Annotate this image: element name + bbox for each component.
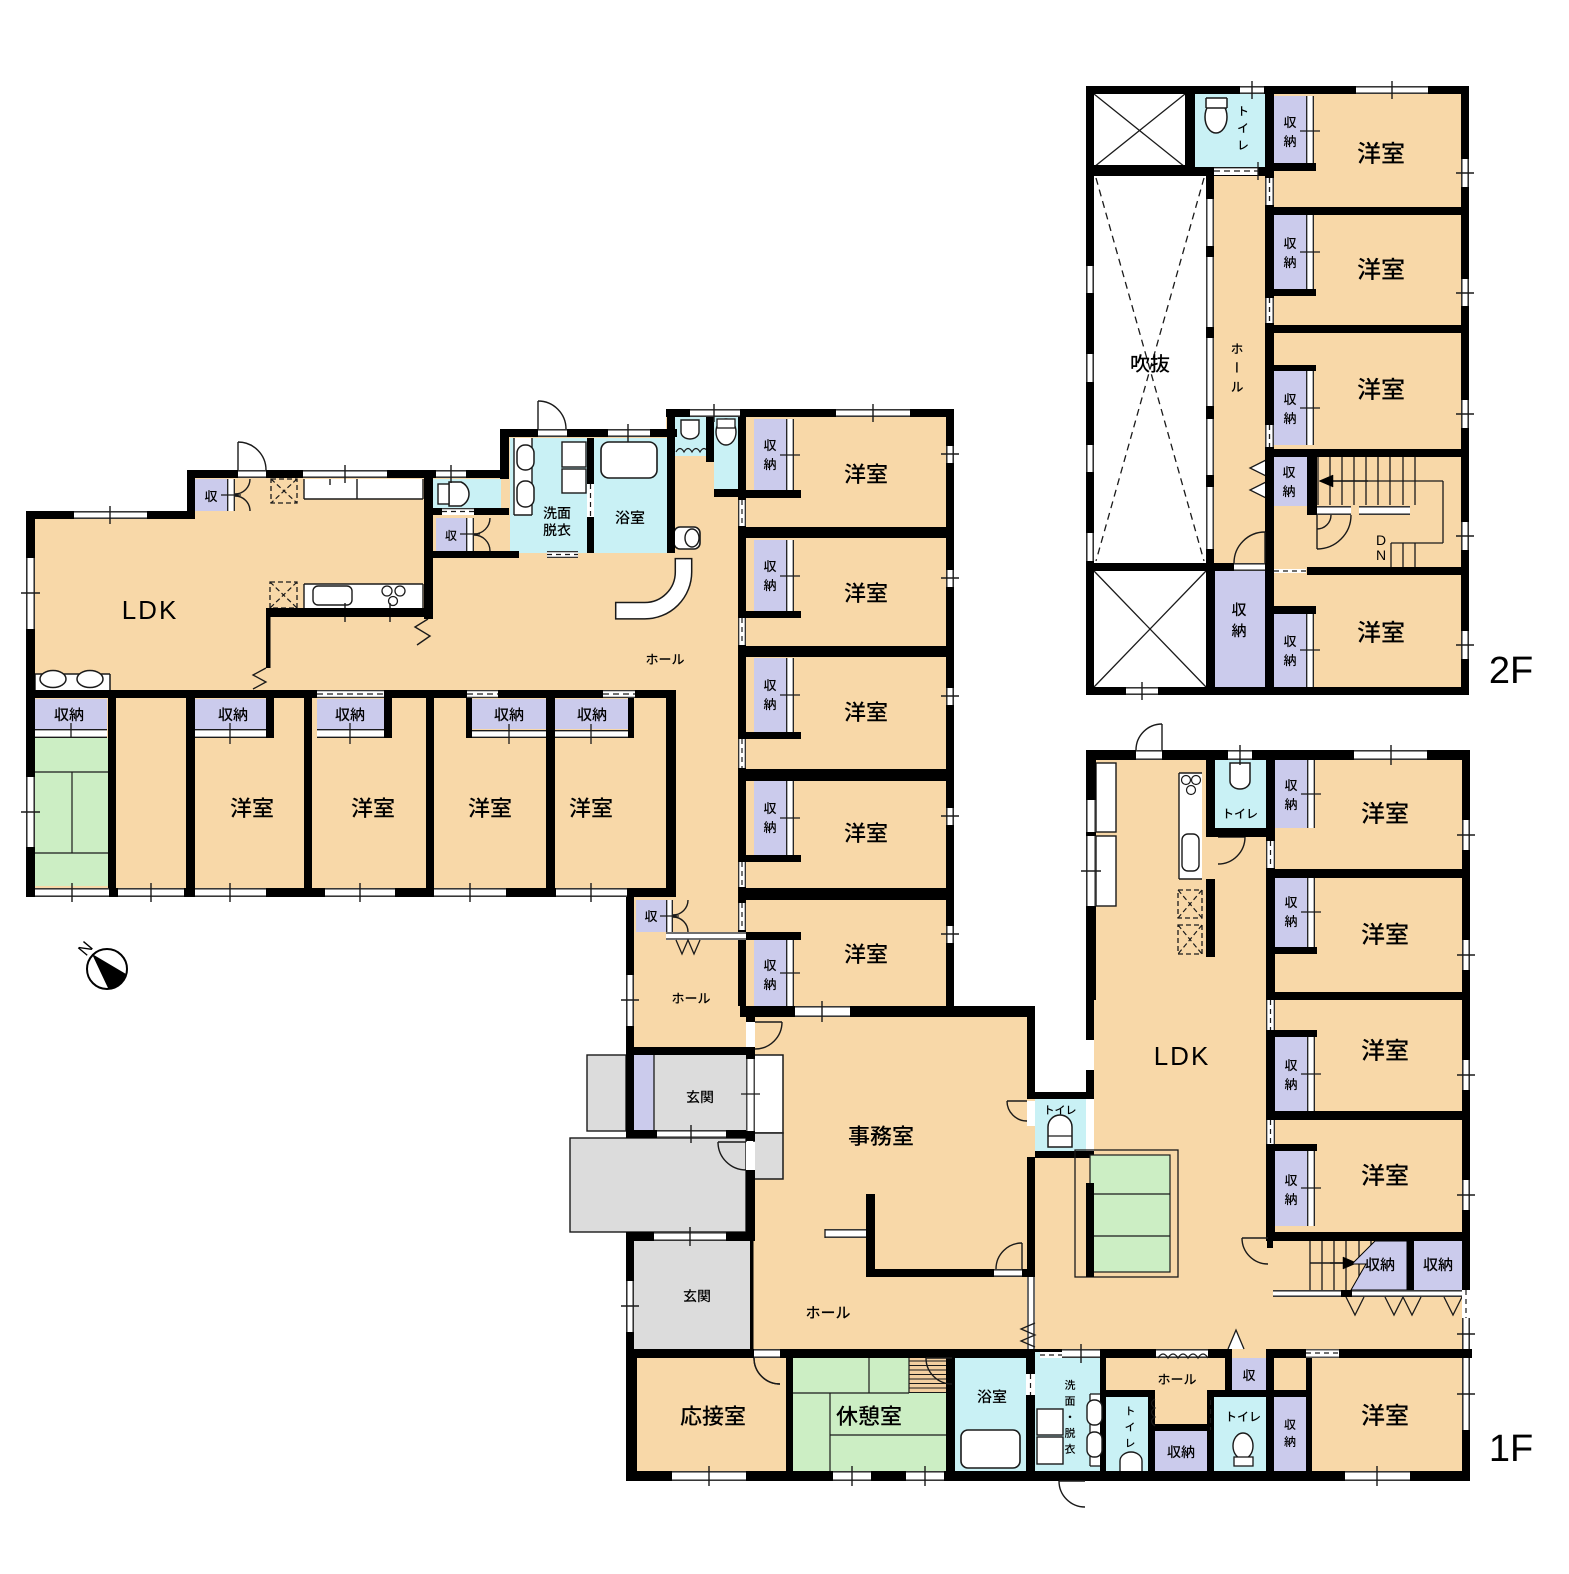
svg-text:ホール: ホール [1157, 1369, 1196, 1388]
svg-text:洋室: 洋室 [1357, 134, 1405, 169]
svg-text:洋室: 洋室 [1357, 250, 1405, 285]
svg-text:収納: 収納 [761, 798, 780, 836]
svg-text:収納: 収納 [1282, 1170, 1301, 1208]
svg-text:ホール: ホール [645, 649, 684, 668]
svg-text:LDK: LDK [122, 595, 179, 625]
svg-text:D: D [1376, 532, 1386, 548]
svg-text:休憩室: 休憩室 [836, 1399, 902, 1431]
svg-text:収納: 収納 [1281, 631, 1300, 669]
svg-text:収納: 収納 [577, 704, 607, 725]
svg-text:収納: 収納 [1280, 462, 1299, 500]
svg-text:脱衣: 脱衣 [543, 520, 571, 540]
svg-text:玄関: 玄関 [683, 1286, 711, 1306]
svg-text:洋室: 洋室 [468, 791, 512, 823]
svg-text:洋室: 洋室 [1361, 1156, 1409, 1191]
svg-text:収納: 収納 [761, 556, 780, 594]
svg-text:洋室: 洋室 [844, 937, 888, 969]
svg-text:トイレ: トイレ [1044, 1102, 1077, 1118]
svg-text:洋室: 洋室 [1361, 915, 1409, 950]
svg-text:収: 収 [445, 527, 457, 544]
svg-text:トイレ: トイレ [1235, 103, 1252, 154]
svg-text:トイレ: トイレ [1222, 805, 1258, 822]
svg-text:洋室: 洋室 [1357, 613, 1405, 648]
svg-text:トイレ: トイレ [1122, 1403, 1138, 1451]
svg-text:1F: 1F [1489, 1428, 1533, 1470]
svg-text:浴室: 浴室 [977, 1386, 1007, 1407]
svg-text:2F: 2F [1489, 650, 1533, 692]
svg-text:洋室: 洋室 [844, 457, 888, 489]
svg-text:収納: 収納 [54, 704, 84, 725]
svg-text:洋室: 洋室 [844, 576, 888, 608]
svg-text:収: 収 [204, 486, 217, 505]
svg-text:LDK: LDK [1154, 1041, 1211, 1071]
svg-text:収納: 収納 [761, 955, 780, 993]
svg-text:収納: 収納 [1281, 233, 1300, 271]
svg-text:洋室: 洋室 [844, 816, 888, 848]
svg-text:収納: 収納 [1282, 1055, 1301, 1093]
svg-text:収納: 収納 [1281, 112, 1300, 150]
svg-text:洋室: 洋室 [569, 791, 613, 823]
svg-text:洋室: 洋室 [844, 695, 888, 727]
svg-text:収納: 収納 [1282, 1416, 1299, 1450]
svg-text:トイレ: トイレ [1225, 1408, 1261, 1425]
svg-text:吹抜: 吹抜 [1130, 348, 1170, 377]
svg-text:ホール: ホール [1228, 339, 1247, 396]
svg-text:玄関: 玄関 [686, 1087, 714, 1107]
svg-text:収納: 収納 [1423, 1254, 1453, 1275]
svg-text:収納: 収納 [1229, 599, 1250, 641]
svg-text:収納: 収納 [1167, 1442, 1195, 1462]
svg-text:収: 収 [1242, 1365, 1255, 1384]
svg-text:事務室: 事務室 [848, 1119, 914, 1151]
svg-text:収納: 収納 [761, 435, 780, 473]
svg-text:収納: 収納 [1282, 775, 1301, 813]
svg-text:洗面・脱衣: 洗面・脱衣 [1062, 1377, 1078, 1457]
svg-text:収納: 収納 [1281, 389, 1300, 427]
svg-text:洋室: 洋室 [1361, 1031, 1409, 1066]
svg-text:ホール: ホール [671, 988, 710, 1007]
svg-text:洋室: 洋室 [1361, 794, 1409, 829]
svg-text:収納: 収納 [1282, 892, 1301, 930]
svg-text:収納: 収納 [494, 704, 524, 725]
svg-text:洋室: 洋室 [1357, 370, 1405, 405]
svg-text:収納: 収納 [218, 704, 248, 725]
svg-text:収: 収 [644, 906, 657, 925]
svg-text:収納: 収納 [1365, 1254, 1395, 1275]
svg-text:洋室: 洋室 [230, 791, 274, 823]
svg-text:洋室: 洋室 [1361, 1396, 1409, 1431]
svg-text:N: N [1376, 547, 1386, 563]
svg-text:洋室: 洋室 [351, 791, 395, 823]
svg-text:浴室: 浴室 [615, 507, 645, 528]
svg-text:収納: 収納 [761, 675, 780, 713]
svg-text:応接室: 応接室 [680, 1399, 746, 1431]
svg-text:ホール: ホール [805, 1302, 850, 1323]
svg-text:収納: 収納 [335, 704, 365, 725]
